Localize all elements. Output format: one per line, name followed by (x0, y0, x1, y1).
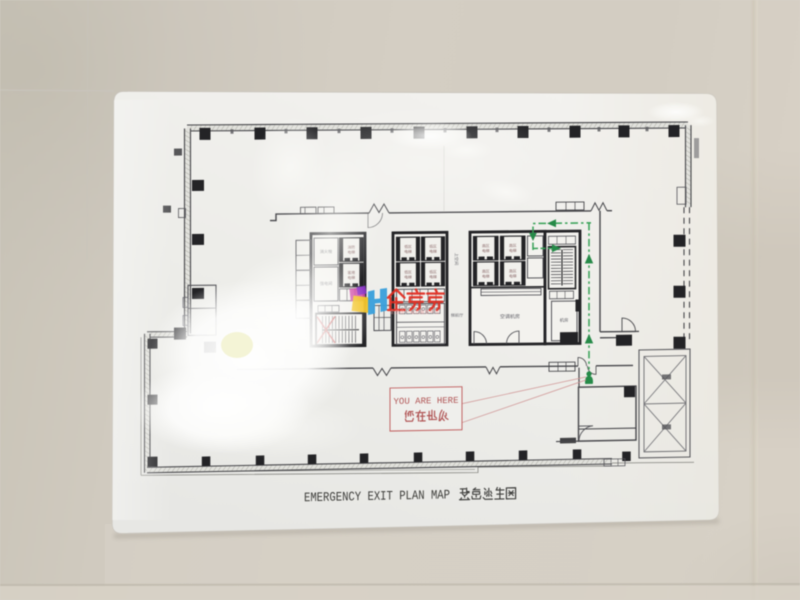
svg-text:高区: 高区 (509, 243, 517, 248)
svg-text:低区: 低区 (404, 244, 412, 249)
svg-text:电梯: 电梯 (429, 249, 437, 254)
svg-text:低区: 低区 (404, 269, 412, 274)
svg-text:电梯: 电梯 (404, 249, 412, 254)
svg-text:电梯: 电梯 (429, 274, 437, 279)
svg-text:空调机房: 空调机房 (500, 313, 520, 320)
svg-text:EMERGENCY EXIT PLAN MAP: EMERGENCY EXIT PLAN MAP (304, 487, 450, 505)
svg-text:高区: 高区 (482, 243, 490, 248)
svg-text:低区: 低区 (429, 269, 437, 274)
svg-text:高区: 高区 (509, 268, 517, 273)
svg-text:企房房一站式服务平台: 企房房一站式服务平台 (390, 309, 440, 316)
svg-text:电梯: 电梯 (509, 248, 517, 253)
svg-text:电梯: 电梯 (482, 248, 490, 253)
svg-text:低区: 低区 (429, 244, 437, 249)
svg-text:电梯: 电梯 (404, 274, 412, 279)
svg-text:高区: 高区 (482, 269, 490, 274)
svg-text:电梯: 电梯 (482, 274, 490, 279)
svg-text:YOU ARE HERE: YOU ARE HERE (394, 396, 459, 407)
svg-text:上空间: 上空间 (453, 253, 460, 266)
svg-text:电梯: 电梯 (509, 273, 517, 278)
